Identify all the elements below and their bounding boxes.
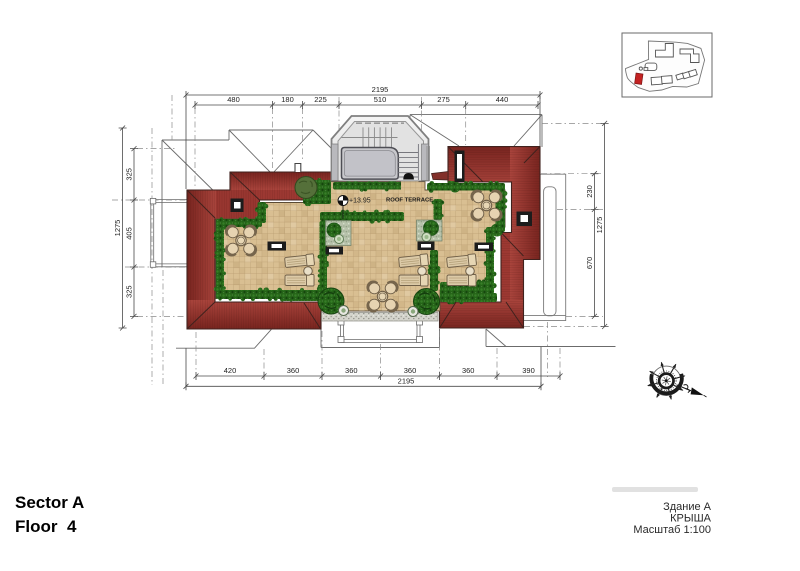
svg-text:360: 360 <box>404 366 417 375</box>
svg-text:1275: 1275 <box>113 220 122 237</box>
svg-text:420: 420 <box>224 366 237 375</box>
svg-text:+13.95: +13.95 <box>349 198 371 205</box>
svg-text:510: 510 <box>374 95 387 104</box>
svg-text:Здание А: Здание А <box>663 501 712 513</box>
svg-text:230: 230 <box>585 185 594 198</box>
svg-text:180: 180 <box>281 95 294 104</box>
svg-text:325: 325 <box>125 285 134 298</box>
svg-text:ROOF TERRACE: ROOF TERRACE <box>386 197 433 203</box>
svg-text:325: 325 <box>125 168 134 181</box>
svg-text:440: 440 <box>496 95 509 104</box>
svg-text:Floor 4: Floor 4 <box>15 517 77 536</box>
svg-text:405: 405 <box>125 227 134 240</box>
svg-text:360: 360 <box>345 366 358 375</box>
svg-text:670: 670 <box>585 257 594 270</box>
svg-text:275: 275 <box>437 95 450 104</box>
svg-text:Sector A: Sector A <box>15 493 84 512</box>
svg-text:КРЫША: КРЫША <box>670 513 712 525</box>
svg-text:2195: 2195 <box>398 377 415 386</box>
svg-text:225: 225 <box>314 95 327 104</box>
svg-text:360: 360 <box>462 366 475 375</box>
svg-text:1275: 1275 <box>595 217 604 234</box>
svg-text:2195: 2195 <box>372 85 389 94</box>
svg-text:360: 360 <box>287 366 300 375</box>
svg-text:480: 480 <box>227 95 240 104</box>
svg-text:390: 390 <box>522 366 535 375</box>
svg-text:Масштаб 1:100: Масштаб 1:100 <box>633 524 711 536</box>
